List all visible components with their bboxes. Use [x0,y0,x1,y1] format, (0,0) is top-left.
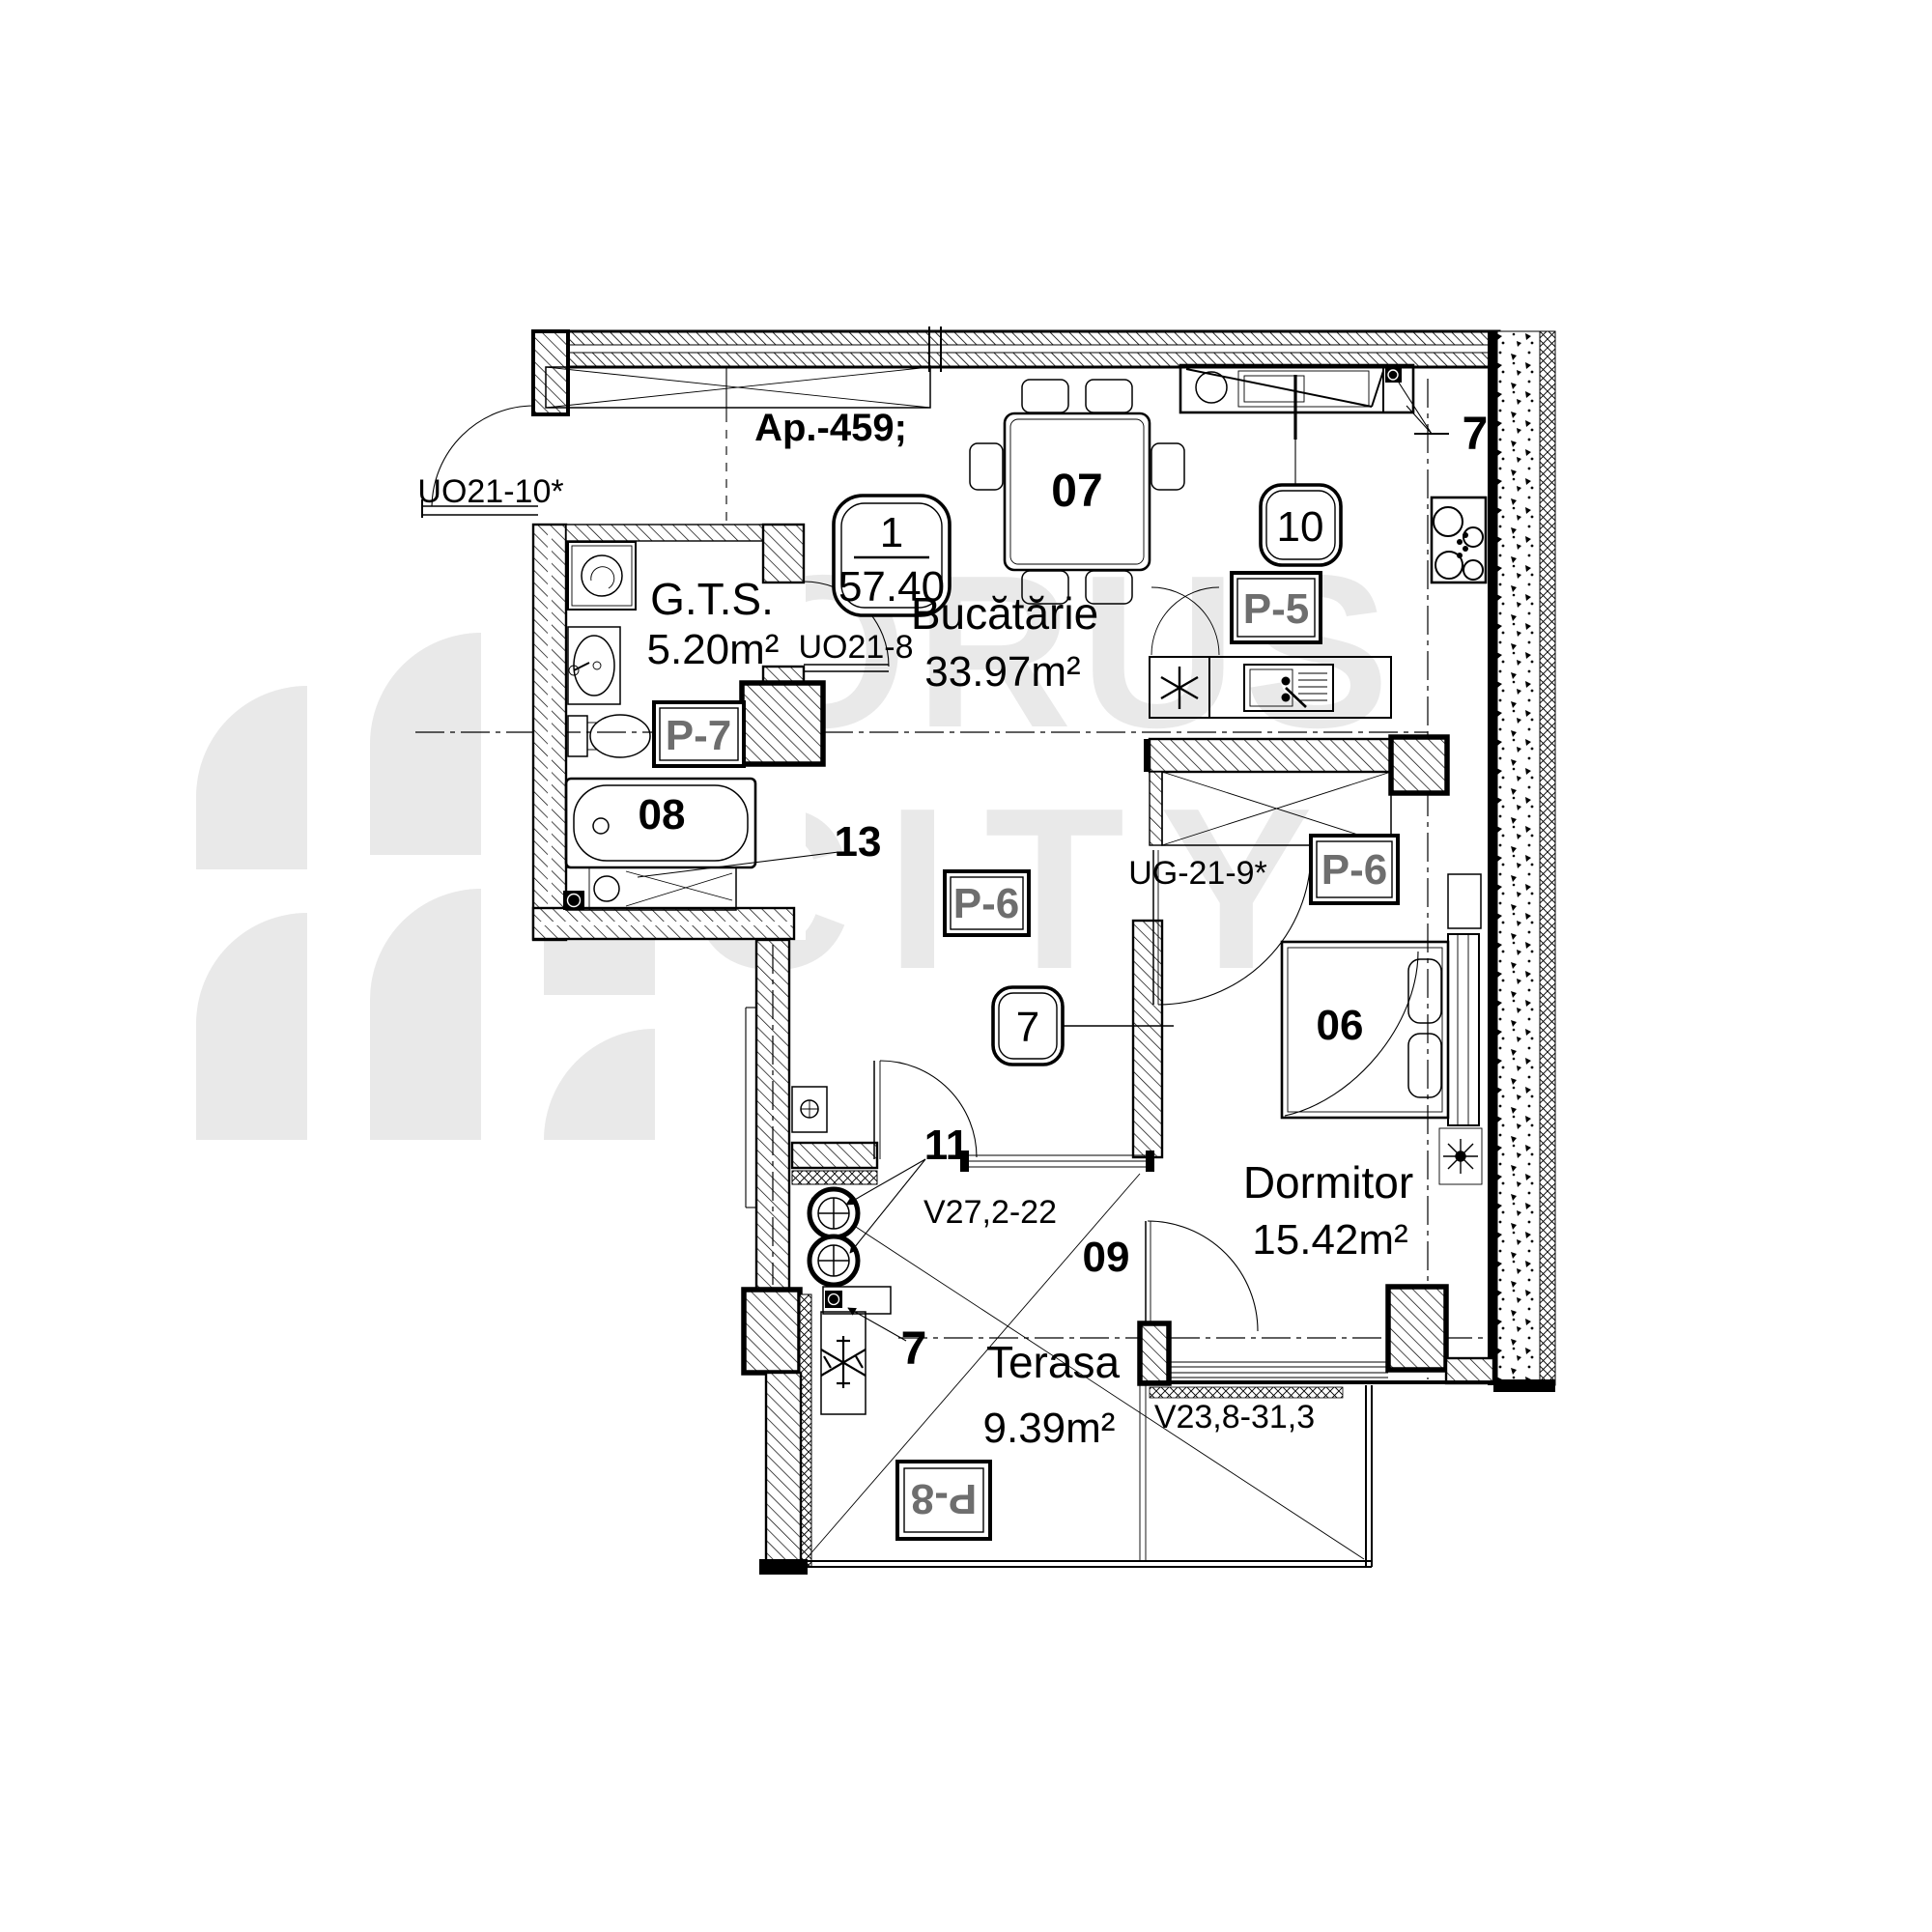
hall-number: 09 [1083,1234,1130,1281]
plant-icon [1443,1139,1478,1174]
bedroom-name: Dormitor [1243,1157,1413,1207]
axis-number-terrace: 7 [901,1323,927,1375]
hall-terrace-window-code: V27,2-22 [923,1194,1057,1231]
kitchen-counter-top [1180,365,1449,434]
outlet-box [792,1087,827,1132]
bedroom-door-code: UG-21-9* [1128,855,1267,892]
axis-number-top: 7 [1463,409,1489,460]
gts-door-code: UO21-8 [798,629,913,666]
risers-number: 11 [924,1122,970,1169]
svg-text:P-5: P-5 [1243,585,1309,633]
terrace-area: 9.39m² [983,1405,1116,1452]
badge-7-label: 7 [1016,1004,1039,1051]
hall-terrace-window [960,1151,1154,1172]
floor-plan-page: HORUS CITY [0,0,1932,1932]
bed-number: 06 [1317,1002,1364,1049]
svg-text:P-6: P-6 [953,880,1019,927]
terrace-name: Terasa [986,1337,1120,1387]
svg-text:P-6: P-6 [1321,846,1387,894]
snowflake-icon [821,1336,866,1388]
badge-10-label: 10 [1277,503,1324,551]
badge-7: 7 [993,987,1063,1065]
table-number: 07 [1051,466,1102,517]
svg-text:P-8: P-8 [911,1475,977,1522]
apartment-label: Ap.-459; [754,407,907,449]
bedroom-area: 15.42m² [1252,1216,1407,1264]
gts-name: G.T.S. [650,574,774,624]
ac-unit [821,1312,866,1414]
terrace-junction-box [823,1287,891,1314]
bedroom-terrace-door [1146,1221,1258,1331]
entry-door-code: UO21-10* [417,473,563,510]
stove [1432,497,1486,582]
kitchen-area: 33.97m² [924,648,1080,696]
badge-10: 10 [1261,485,1341,565]
unit-number: 1 [880,509,903,556]
panel-p8: P-8 [897,1462,990,1539]
hall-wardrobe-mark [746,1008,755,1207]
vanity-number: 13 [835,818,882,866]
panel-p6-bedroom: P-6 [1311,836,1398,903]
niche-cabinet [546,367,930,408]
svg-text:P-7: P-7 [666,712,731,759]
bedroom-window-code: V23,8-31,3 [1154,1399,1315,1435]
panel-p6-hall: P-6 [945,871,1029,935]
bathtub-number: 08 [639,791,686,838]
floor-plan-canvas: HORUS CITY [0,0,1932,1932]
gts-area: 5.20m² [647,626,780,673]
kitchen-name: Bucătărie [911,588,1098,639]
panel-p5: P-5 [1232,573,1321,642]
risers [810,1189,858,1285]
panel-p7: P-7 [654,702,744,766]
